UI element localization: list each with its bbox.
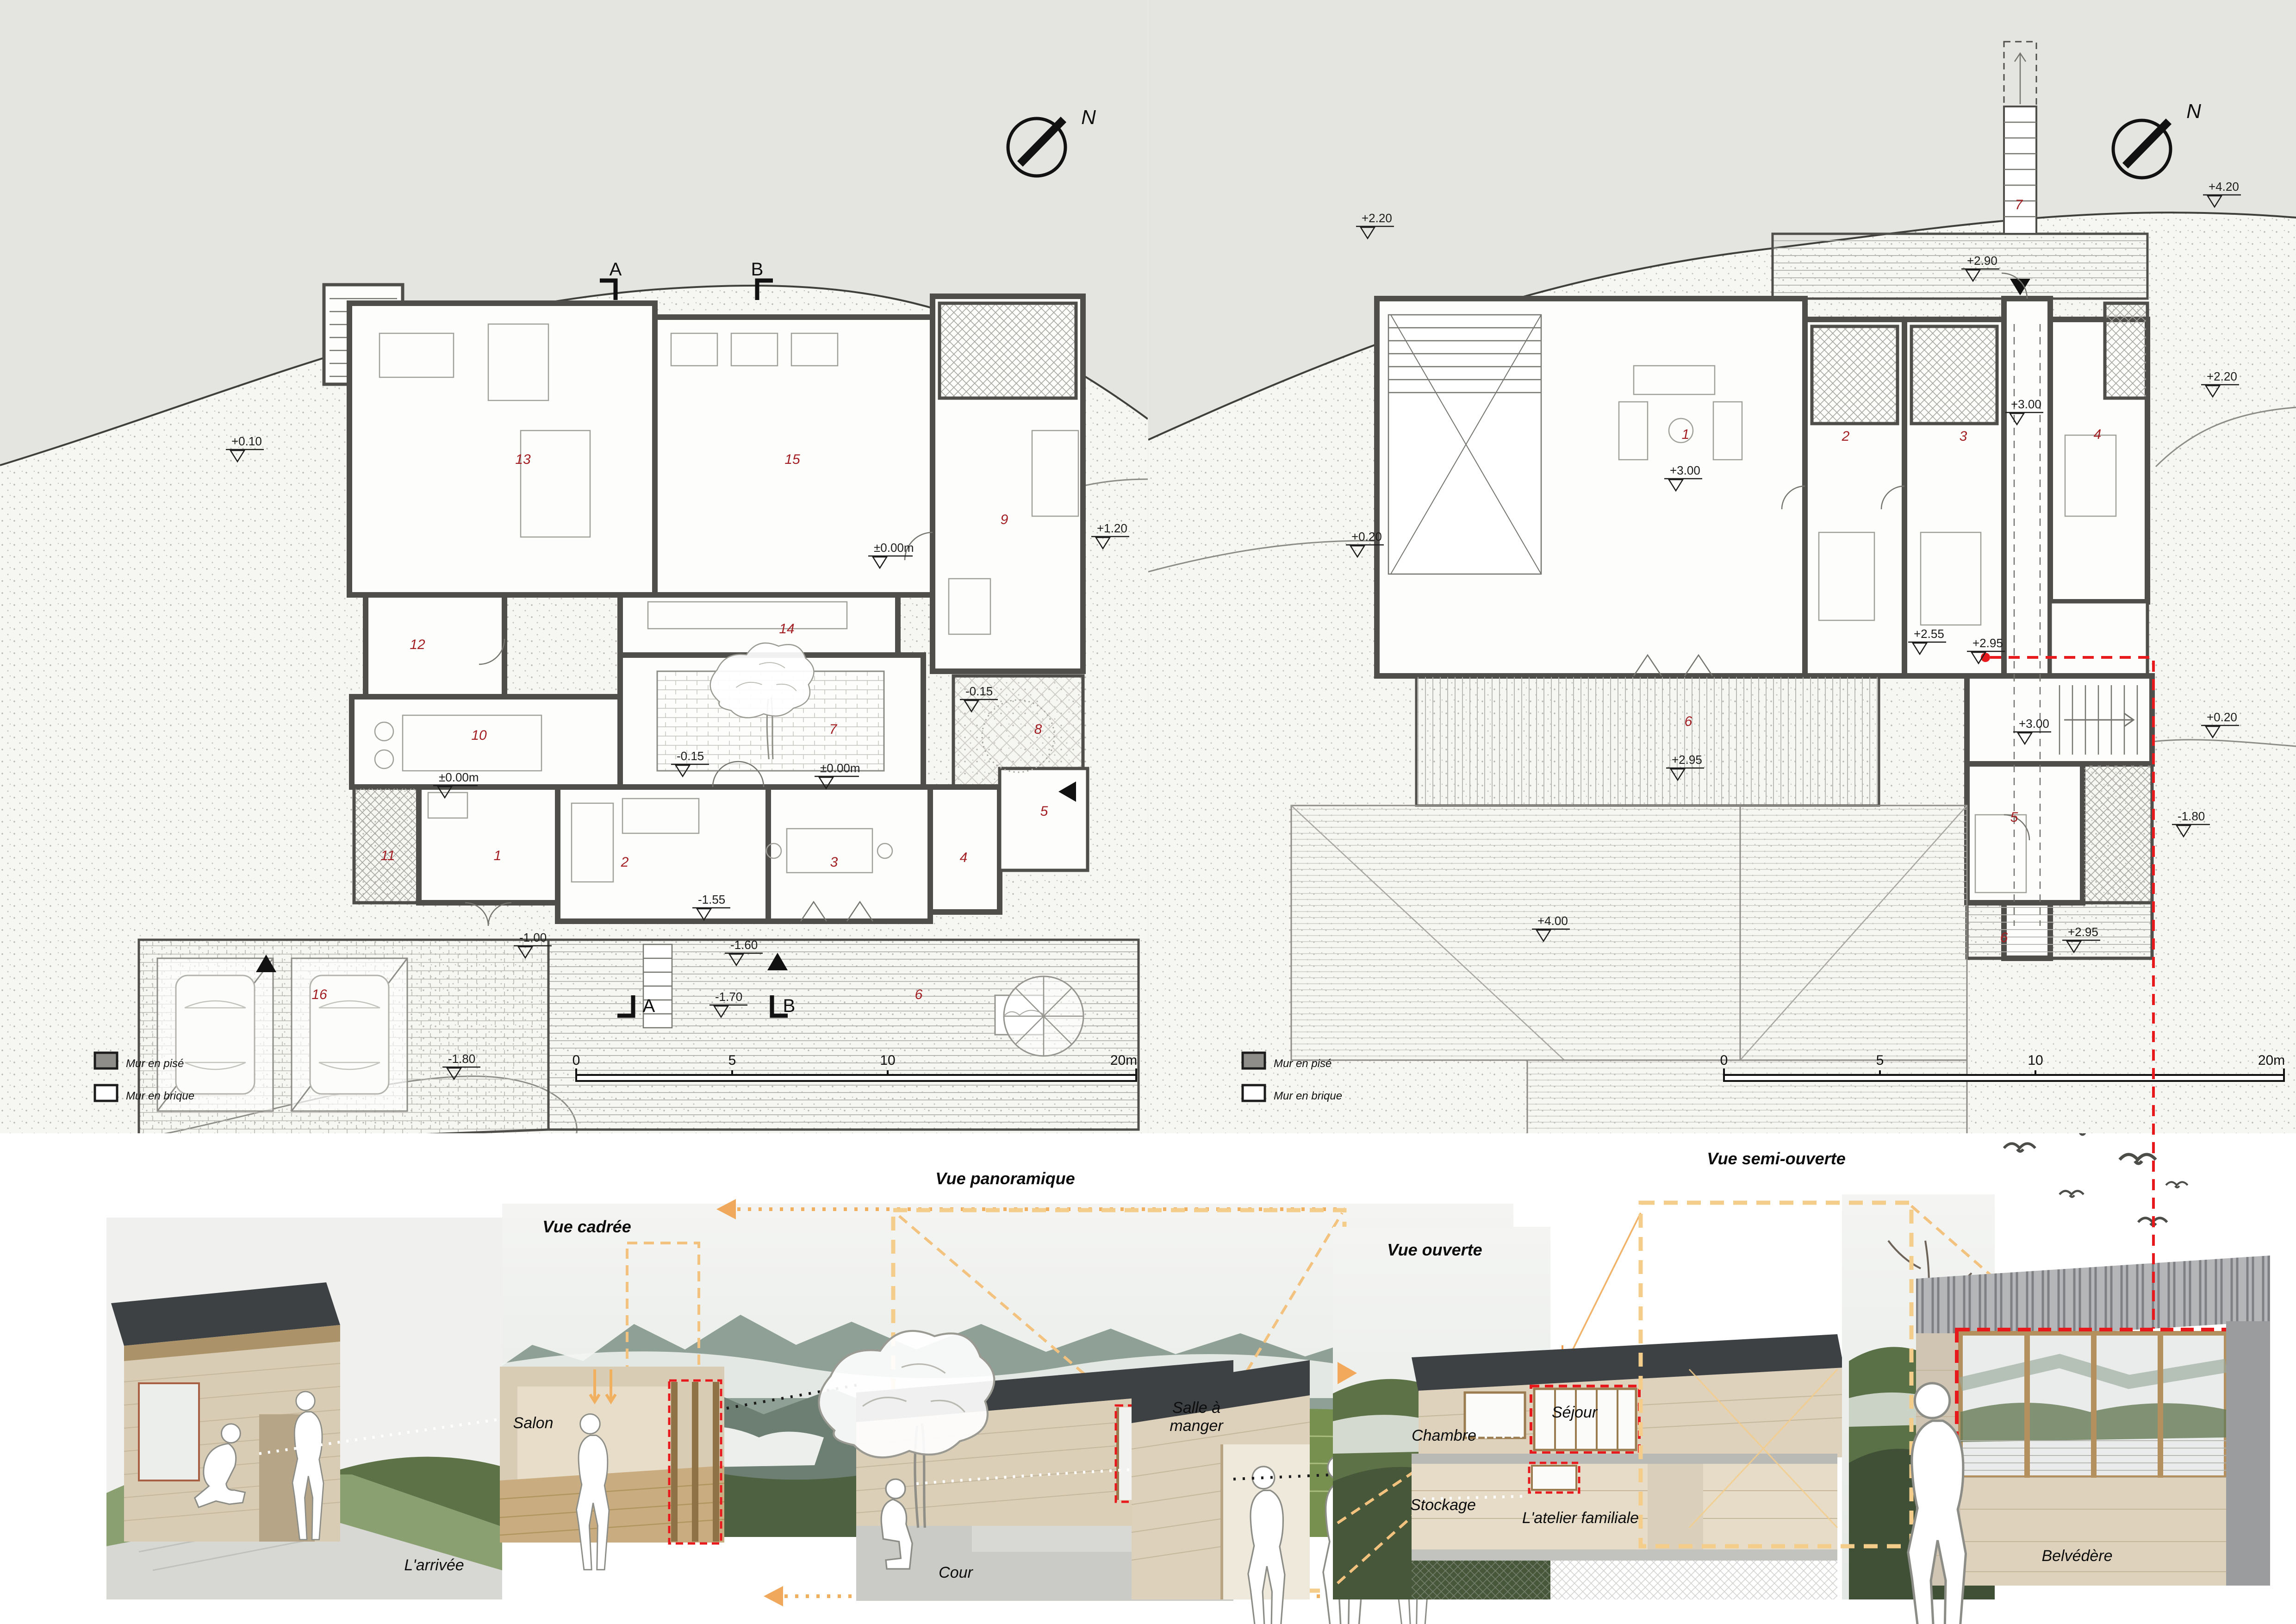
plan-rdc-drawing: 12345678910111213141516 +0.10±0.00m+1.20…: [0, 0, 1148, 1139]
level-marker: -0.15: [677, 749, 704, 763]
room-number: 3: [830, 855, 838, 870]
room-number: 5: [2010, 810, 2018, 825]
level-marker: +2.20: [1362, 211, 1392, 225]
level-marker: +2.20: [2207, 369, 2237, 383]
scene-label: Salle àmanger: [1170, 1399, 1224, 1435]
view-label: Vue semi-ouverte: [1707, 1149, 1845, 1168]
room-number: 7: [2015, 197, 2023, 212]
walkway: [1773, 234, 2147, 299]
room-number: 5: [1040, 804, 1048, 819]
scale-tick: 0: [572, 1053, 580, 1068]
level-marker: -1.60: [730, 938, 758, 952]
scene-label: Salon: [513, 1414, 554, 1432]
level-marker: -0.15: [965, 684, 993, 698]
level-marker: +4.00: [1537, 914, 1568, 928]
view-label: Vue cadrée: [542, 1217, 631, 1236]
room-number: 6: [915, 987, 923, 1002]
room-number: 11: [380, 848, 395, 863]
level-marker: +0.20: [1351, 530, 1382, 543]
level-marker: +1.20: [1097, 521, 1127, 535]
room-number: 1: [1682, 427, 1690, 442]
section-letter: A: [610, 259, 622, 280]
plan-r1-drawing: 12346567 +2.20+0.20+2.90+4.20+3.00+2.95+…: [1148, 0, 2296, 1139]
scene-label: Stockage: [1410, 1496, 1476, 1514]
scale-tick: 10: [2028, 1053, 2043, 1068]
level-marker: -1.00: [519, 931, 547, 944]
wall-legend-label: Mur en brique: [1274, 1090, 1342, 1102]
presentation-board: PLAN RDC L'entrée 1Salle d'entrée2Salon3…: [0, 0, 2296, 1624]
level-marker: ±0.00m: [439, 770, 479, 784]
section-letter: B: [751, 259, 764, 280]
scale-tick: 10: [880, 1053, 895, 1068]
scene-label: Chambre: [1412, 1427, 1476, 1444]
level-marker: +3.00: [1670, 463, 1700, 477]
level-marker: ±0.00m: [820, 761, 860, 775]
arrival-photo: [106, 1218, 502, 1599]
dining-section: [1132, 1360, 1310, 1624]
scene-label: Cour: [939, 1564, 973, 1581]
room-number: 1: [494, 848, 502, 863]
room-number: 16: [311, 987, 327, 1002]
view-label: Vue panoramique: [935, 1169, 1075, 1188]
section-letter: B: [783, 996, 796, 1016]
room-number: 8: [1034, 722, 1042, 737]
plan-rdc-walls: [324, 285, 1088, 921]
level-marker: -1.80: [448, 1052, 475, 1066]
view-label: Vue ouverte: [1387, 1240, 1482, 1259]
scale-tick: 5: [1876, 1053, 1884, 1068]
level-marker: +3.00: [2011, 397, 2041, 411]
views-strip: Vue cadréeVue panoramiqueVue ouverteVue …: [0, 1133, 2296, 1624]
room-number: 7: [829, 722, 838, 737]
wall-legend-label: Mur en pisé: [1274, 1057, 1332, 1070]
level-marker: -1.70: [715, 990, 742, 1004]
level-marker: +2.90: [1967, 254, 1997, 268]
level-marker: +0.10: [231, 434, 262, 448]
level-marker: -1.55: [698, 893, 725, 906]
level-marker: +3.00: [2019, 717, 2049, 731]
room-number: 6: [2000, 930, 2008, 945]
level-marker: +2.55: [1914, 627, 1944, 641]
stair-void: [1388, 315, 1541, 574]
north-label: N: [2186, 100, 2201, 123]
scene-label: L'arrivée: [404, 1556, 464, 1574]
room-number: 10: [471, 728, 487, 743]
scene-label: L'atelier familiale: [1522, 1509, 1639, 1527]
section-letter: A: [643, 996, 655, 1016]
room-number: 13: [515, 452, 531, 467]
level-marker: +4.20: [2209, 180, 2239, 194]
scale-tick: 0: [1720, 1053, 1728, 1068]
scale-tick: 5: [728, 1053, 736, 1068]
room-number: 4: [960, 850, 968, 865]
room-number: 6: [1685, 714, 1692, 729]
scene-label: Belvédère: [2041, 1547, 2112, 1565]
room-number: 9: [1001, 512, 1008, 527]
belvedere-photo: [1908, 1255, 2270, 1624]
level-marker: -1.80: [2178, 809, 2205, 823]
scale-tick: 20m: [2258, 1053, 2285, 1068]
wall-legend-label: Mur en brique: [126, 1090, 194, 1102]
north-label: N: [1081, 106, 1096, 129]
room-number: 3: [1960, 429, 1967, 444]
room-number: 4: [2094, 427, 2102, 442]
wall-legend-label: Mur en pisé: [126, 1057, 184, 1070]
level-marker: +2.95: [1972, 636, 2003, 650]
room-number: 14: [779, 621, 794, 637]
room-number: 2: [1842, 429, 1850, 444]
room-number: 12: [410, 637, 425, 652]
level-marker: +2.95: [1672, 753, 1702, 767]
terrace-r1: [1416, 676, 1879, 806]
level-marker: +0.20: [2207, 710, 2237, 724]
level-marker: ±0.00m: [874, 541, 914, 555]
room-number: 2: [621, 855, 629, 870]
scene-label: Séjour: [1552, 1404, 1598, 1421]
scale-tick: 20m: [1110, 1053, 1137, 1068]
level-marker: +2.95: [2068, 925, 2098, 939]
room-number: 15: [784, 452, 800, 467]
